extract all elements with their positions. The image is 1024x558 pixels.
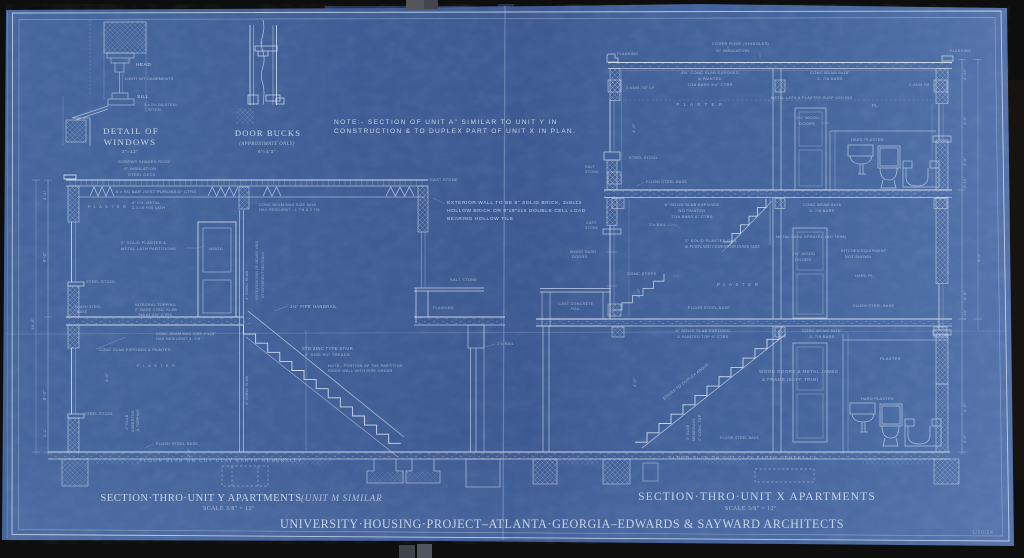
svg-text:HARD PLASTER: HARD PLASTER (861, 397, 894, 401)
svg-text:EXTERIOR WALL TO BE 8" SOLID B: EXTERIOR WALL TO BE 8" SOLID BRICK, 3x8x… (447, 200, 582, 206)
svg-text:FLOOR STEEL BASE: FLOOR STEEL BASE (720, 436, 760, 440)
svg-text:FLASHING: FLASHING (617, 52, 638, 56)
svg-text:WOOD DOORS & METAL JAMBS: WOOD DOORS & METAL JAMBS (759, 369, 838, 374)
svg-text:18'-6": 18'-6" (30, 318, 35, 330)
svg-text:CONC BEAM 8x16": CONC BEAM 8x16" (802, 328, 842, 333)
svg-text:2" SOLID PLASTER RAIL: 2" SOLID PLASTER RAIL (685, 238, 738, 243)
svg-text:& PAINTED TOP 6" CTRS: & PAINTED TOP 6" CTRS (677, 334, 728, 339)
svg-text:2'-6": 2'-6" (963, 434, 967, 443)
svg-text:2-#344 7/8: 2-#344 7/8 (909, 83, 930, 87)
svg-text:ASBESTOS: ASBESTOS (131, 410, 135, 432)
svg-text:¾" INSULATION: ¾" INSULATION (716, 48, 749, 53)
svg-text:PLASTER: PLASTER (880, 356, 901, 361)
svg-text:& PORTLAND CEMENT ON INNER SID: & PORTLAND CEMENT ON INNER SIDE (685, 245, 760, 249)
svg-text:CAST: CAST (586, 221, 597, 225)
svg-text:6" SOLID SLAB EXPOSED: 6" SOLID SLAB EXPOSED (676, 328, 731, 333)
svg-text:2'-10": 2'-10" (962, 68, 967, 80)
svg-text:CAST STONE: CAST STONE (430, 177, 458, 182)
svg-text:4" RISE 9½" TREADS: 4" RISE 9½" TREADS (305, 352, 350, 357)
svg-text:HARD PL.: HARD PL. (855, 274, 875, 278)
svg-text:RAIL: RAIL (571, 307, 580, 311)
svg-text:DOORS: DOORS (795, 257, 811, 262)
svg-text:INTEGRAL TOPPING: INTEGRAL TOPPING (135, 303, 176, 307)
svg-text:WINDOWS: WINDOWS (104, 137, 157, 147)
svg-text:& FRAME (BUFF TRIM): & FRAME (BUFF TRIM) (762, 377, 819, 382)
svg-text:NOTE:- PORTION OF THE PARTITIO: NOTE:- PORTION OF THE PARTITION (328, 364, 403, 368)
svg-text:1¾" WOOD: 1¾" WOOD (792, 251, 815, 256)
svg-text:3- 7/8 BARS: 3- 7/8 BARS (817, 76, 843, 81)
svg-text:3- 7/8 BARS: 3- 7/8 BARS (809, 334, 835, 339)
svg-text:FLUSH STEEL BASE: FLUSH STEEL BASE (156, 441, 198, 446)
svg-text:CONC SLAB EXPOSED & PAINTED: CONC SLAB EXPOSED & PAINTED (99, 347, 171, 352)
svg-text:BEARING HOLLOW TILE: BEARING HOLLOW TILE (447, 216, 514, 222)
svg-text:STEEL STOOL: STEEL STOOL (86, 279, 116, 284)
svg-text:3 x 1¼ GA STEEL: 3 x 1¼ GA STEEL (144, 103, 178, 107)
svg-text:STEEL STOOL: STEEL STOOL (84, 411, 114, 416)
svg-text:1¼" PIPE HANDRAIL: 1¼" PIPE HANDRAIL (290, 304, 337, 309)
svg-text:6 x RD BAR JOIST PURLINS 6" C: 6 x RD BAR JOIST PURLINS 6" CTRS (116, 189, 196, 194)
svg-text:SCALE 3/8" = 12": SCALE 3/8" = 12" (203, 506, 255, 512)
svg-text:2": 2" (260, 40, 264, 45)
svg-text:STONE: STONE (585, 170, 599, 174)
svg-text:COVER ROOF (SHINGLES): COVER ROOF (SHINGLES) (712, 41, 770, 46)
svg-text:3'-4": 3'-4" (42, 190, 47, 200)
svg-text:DOORS: DOORS (799, 121, 815, 126)
svg-text:3.4 LB RIB LATH: 3.4 LB RIB LATH (132, 206, 165, 210)
svg-text:2-#344 7/8" LP: 2-#344 7/8" LP (626, 86, 655, 90)
svg-text:STEEL DECK: STEEL DECK (128, 172, 156, 177)
svg-text:SILL: SILL (137, 94, 149, 100)
svg-text:METAL SAND SPRAYED (NO TRIM): METAL SAND SPRAYED (NO TRIM) (776, 235, 847, 239)
svg-text:8'-0": 8'-0" (976, 252, 981, 262)
svg-text:5'-2": 5'-2" (43, 428, 47, 437)
svg-text:NOT SHOWN: NOT SHOWN (845, 255, 871, 259)
svg-text:BASE: BASE (77, 310, 88, 314)
svg-text:SECTION·THRO·UNIT X APARTMENTS: SECTION·THRO·UNIT X APARTMENTS (638, 490, 876, 503)
svg-text:HAS RESILIENT - 1 7/8 & 2 7/8: HAS RESILIENT - 1 7/8 & 2 7/8 (259, 208, 320, 212)
svg-text:4'-0": 4'-0" (631, 123, 636, 133)
svg-text:9'-0": 9'-0" (42, 252, 47, 262)
svg-text:UNIVERSITY·HOUSING·PROJECT–ATL: UNIVERSITY·HOUSING·PROJECT–ATLANTA·GEORG… (280, 517, 844, 531)
svg-text:WOOD SASH: WOOD SASH (570, 250, 596, 254)
svg-text:AT DIFFERENT SECTIONS: AT DIFFERENT SECTIONS (261, 251, 265, 298)
svg-text:4'-0": 4'-0" (632, 377, 637, 387)
svg-text:(UNIT M SIMILAR: (UNIT M SIMILAR (301, 493, 382, 503)
svg-text:3'-6": 3'-6" (962, 290, 967, 300)
svg-text:P L A S T E R: P L A S T E R (88, 204, 127, 209)
svg-text:METAL LATH PARTITIONS: METAL LATH PARTITIONS (121, 246, 176, 251)
svg-text:6" SOLID SLAB EXPOSED: 6" SOLID SLAB EXPOSED (665, 202, 720, 207)
svg-text:4'-0": 4'-0" (962, 115, 967, 125)
svg-text:P L A S T E R: P L A S T E R (137, 363, 176, 368)
svg-text:P L A S T E R: P L A S T E R (676, 102, 723, 107)
svg-text:3"=12": 3"=12" (122, 149, 139, 154)
svg-text:FLOOR STEEL BASE: FLOOR STEEL BASE (688, 306, 730, 310)
svg-text:SCALE 3/8" = 12": SCALE 3/8" = 12" (725, 506, 777, 512)
svg-text:1'-10": 1'-10" (963, 309, 967, 320)
svg-text:4'-0": 4'-0" (636, 288, 641, 298)
svg-text:MEMBRANE: MEMBRANE (692, 418, 696, 441)
svg-text:7x6 AT 5¾" CTRS: 7x6 AT 5¾" CTRS (138, 313, 173, 317)
svg-text:SCREWS SHAKES ROOF: SCREWS SHAKES ROOF (118, 159, 171, 164)
svg-text:CONSTRUCTION & TO DUPLEX PART: CONSTRUCTION & TO DUPLEX PART OF UNIT X … (334, 128, 576, 135)
svg-text:SALT: SALT (585, 165, 596, 169)
svg-text:CAST CONCRETE: CAST CONCRETE (558, 302, 594, 306)
svg-text:4" CONC TOP: 4" CONC TOP (698, 414, 702, 441)
svg-text:METAL LATH & PLASTER SUSP CEIL: METAL LATH & PLASTER SUSP CEILING (771, 96, 852, 100)
svg-text:NO PAINTED: NO PAINTED (678, 208, 705, 213)
svg-text:NOTE:- SECTION OF UNIT A" SIM: NOTE:- SECTION OF UNIT A" SIMILAR TO UNI… (334, 119, 558, 126)
svg-text:2"x RAIL: 2"x RAIL (497, 342, 514, 346)
svg-text:WOOD: WOOD (209, 247, 223, 251)
svg-text:4" INSULATION: 4" INSULATION (124, 166, 156, 171)
svg-text:6" CH. METAL: 6" CH. METAL (132, 201, 160, 205)
svg-text:3" SLAB: 3" SLAB (686, 424, 690, 440)
svg-text:FLUSH STEEL BASE: FLUSH STEEL BASE (646, 180, 688, 184)
svg-text:KITCHEN EQUIPMENT: KITCHEN EQUIPMENT (841, 249, 887, 253)
svg-text:1¾" WOOD: 1¾" WOOD (796, 115, 819, 120)
svg-text:NOTE POSITION OF BEAMS WRG: NOTE POSITION OF BEAMS WRG (255, 240, 259, 300)
svg-text:STOOL: STOOL (148, 108, 162, 112)
svg-text:STEEL STOOL: STEEL STOOL (629, 156, 658, 160)
svg-text:2" BASE CONC SLAB: 2" BASE CONC SLAB (135, 308, 177, 312)
svg-text:& PAINTED: & PAINTED (698, 76, 722, 81)
svg-text:2" SOLID PLASTER &: 2" SOLID PLASTER & (121, 240, 166, 245)
svg-text:SECTION·THRO·UNIT Y APARTMENTS: SECTION·THRO·UNIT Y APARTMENTS (100, 493, 301, 504)
svg-text:7/16 BARS 5¼" CTRS: 7/16 BARS 5¼" CTRS (687, 82, 732, 87)
svg-text:4" CONC SLAB: 4" CONC SLAB (245, 375, 249, 405)
svg-text:LIGHT WT CASEMENTS: LIGHT WT CASEMENTS (125, 76, 174, 81)
svg-text:FLUSH STEEL: FLUSH STEEL (75, 305, 101, 309)
svg-text:DOOR BUCKS: DOOR BUCKS (235, 128, 301, 138)
svg-text:P L A S T E R: P L A S T E R (717, 282, 759, 287)
svg-text:RISER WALL WITH PIPE ORDER: RISER WALL WITH PIPE ORDER (328, 369, 392, 373)
svg-text:4" CONC SLAB: 4" CONC SLAB (245, 270, 249, 300)
svg-text:(APPROXIMATE ONLY): (APPROXIMATE ONLY) (239, 142, 295, 147)
svg-text:CONC BEAM 8x16: CONC BEAM 8x16 (803, 202, 842, 207)
svg-text:3- 7/8 BARS: 3- 7/8 BARS (809, 208, 835, 213)
svg-text:& TOPPING: & TOPPING (136, 409, 140, 431)
svg-text:STONE: STONE (585, 226, 599, 230)
svg-text:FLASHING: FLASHING (433, 306, 454, 310)
svg-text:HEAD: HEAD (136, 62, 151, 68)
svg-text:1'-10": 1'-10" (963, 177, 967, 188)
svg-text:2'-6": 2'-6" (187, 448, 191, 457)
svg-text:FLASHING: FLASHING (950, 49, 971, 53)
svg-text:FLUSH STEEL BASE: FLUSH STEEL BASE (853, 304, 895, 308)
svg-text:HAS RESILIENT 3- 7/8 ": HAS RESILIENT 3- 7/8 " (156, 337, 203, 341)
svg-text:FLOOR SLAB ON CUT CLAY EARTH: FLOOR SLAB ON CUT CLAY EARTH GENERALLY (669, 455, 818, 460)
svg-text:SALT STONE: SALT STONE (450, 277, 477, 282)
svg-text:6"=1'3": 6"=1'3" (258, 149, 276, 154)
svg-text:4'-0": 4'-0" (962, 402, 967, 412)
svg-text:CONC STEPS: CONC STEPS (627, 271, 657, 276)
svg-text:2" SLAB: 2" SLAB (125, 414, 129, 430)
svg-text:DETAIL OF: DETAIL OF (103, 126, 159, 136)
svg-text:1/20/24: 1/20/24 (972, 530, 994, 536)
svg-text:CONC BEAM MAX SIZE 8x18: CONC BEAM MAX SIZE 8x18 (259, 203, 316, 207)
svg-text:DOORS: DOORS (572, 255, 588, 259)
svg-text:PL.: PL. (872, 103, 880, 108)
svg-text:HOLLOW BRICK OR 8"x8"x16 DOUBL: HOLLOW BRICK OR 8"x8"x16 DOUBLE CELL LOA… (447, 208, 586, 214)
svg-text:3'-6": 3'-6" (962, 156, 967, 166)
svg-text:STD ZINC TYPE STAIR: STD ZINC TYPE STAIR (302, 346, 353, 351)
svg-text:2"x RAIL: 2"x RAIL (649, 223, 666, 227)
svg-text:7/16 BARS 6" CTRS: 7/16 BARS 6" CTRS (671, 214, 713, 219)
svg-text:HARD PLASTER: HARD PLASTER (851, 138, 884, 142)
svg-text:4'-0": 4'-0" (104, 372, 109, 382)
svg-text:CONC BEAM MAX SIZE 8"x18": CONC BEAM MAX SIZE 8"x18" (156, 332, 216, 336)
svg-text:9'-0": 9'-0" (42, 390, 47, 400)
